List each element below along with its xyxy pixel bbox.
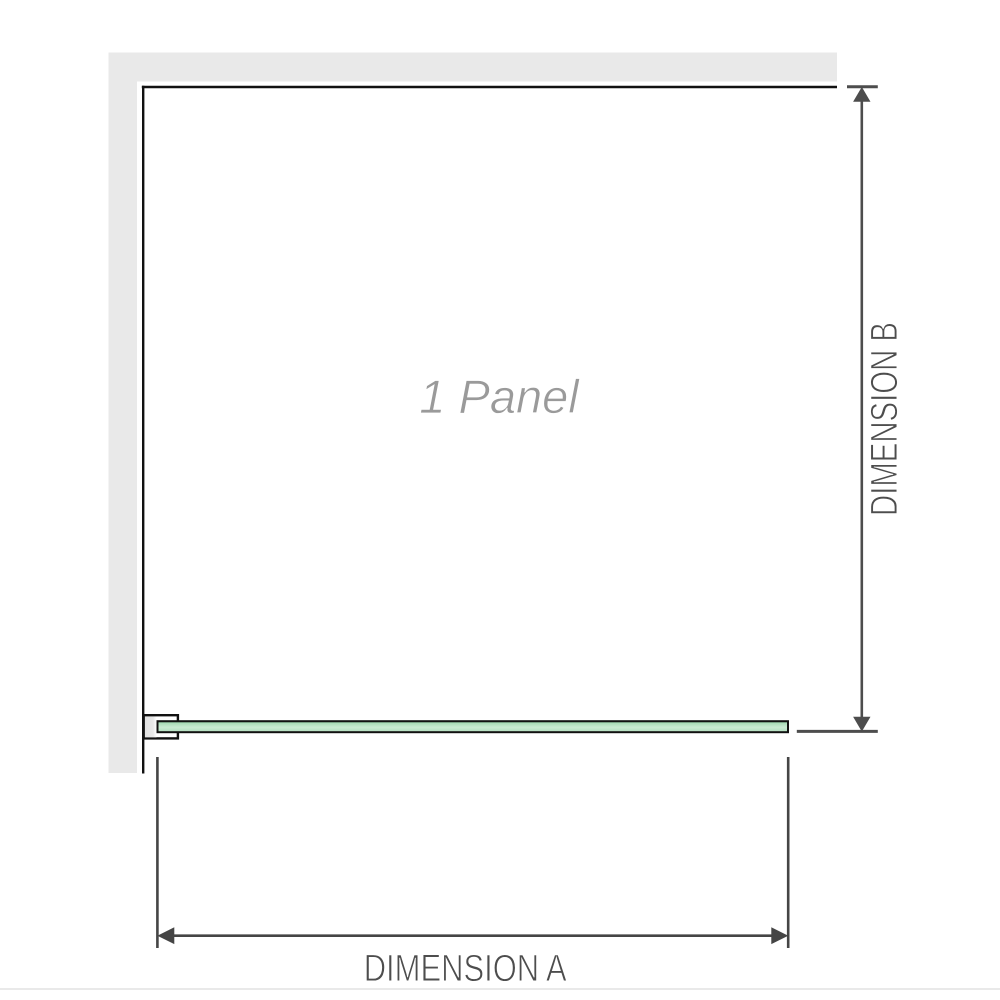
svg-text:DIMENSION A: DIMENSION A (364, 948, 568, 990)
svg-text:DIMENSION B: DIMENSION B (864, 322, 906, 516)
svg-text:1 Panel: 1 Panel (419, 370, 580, 423)
